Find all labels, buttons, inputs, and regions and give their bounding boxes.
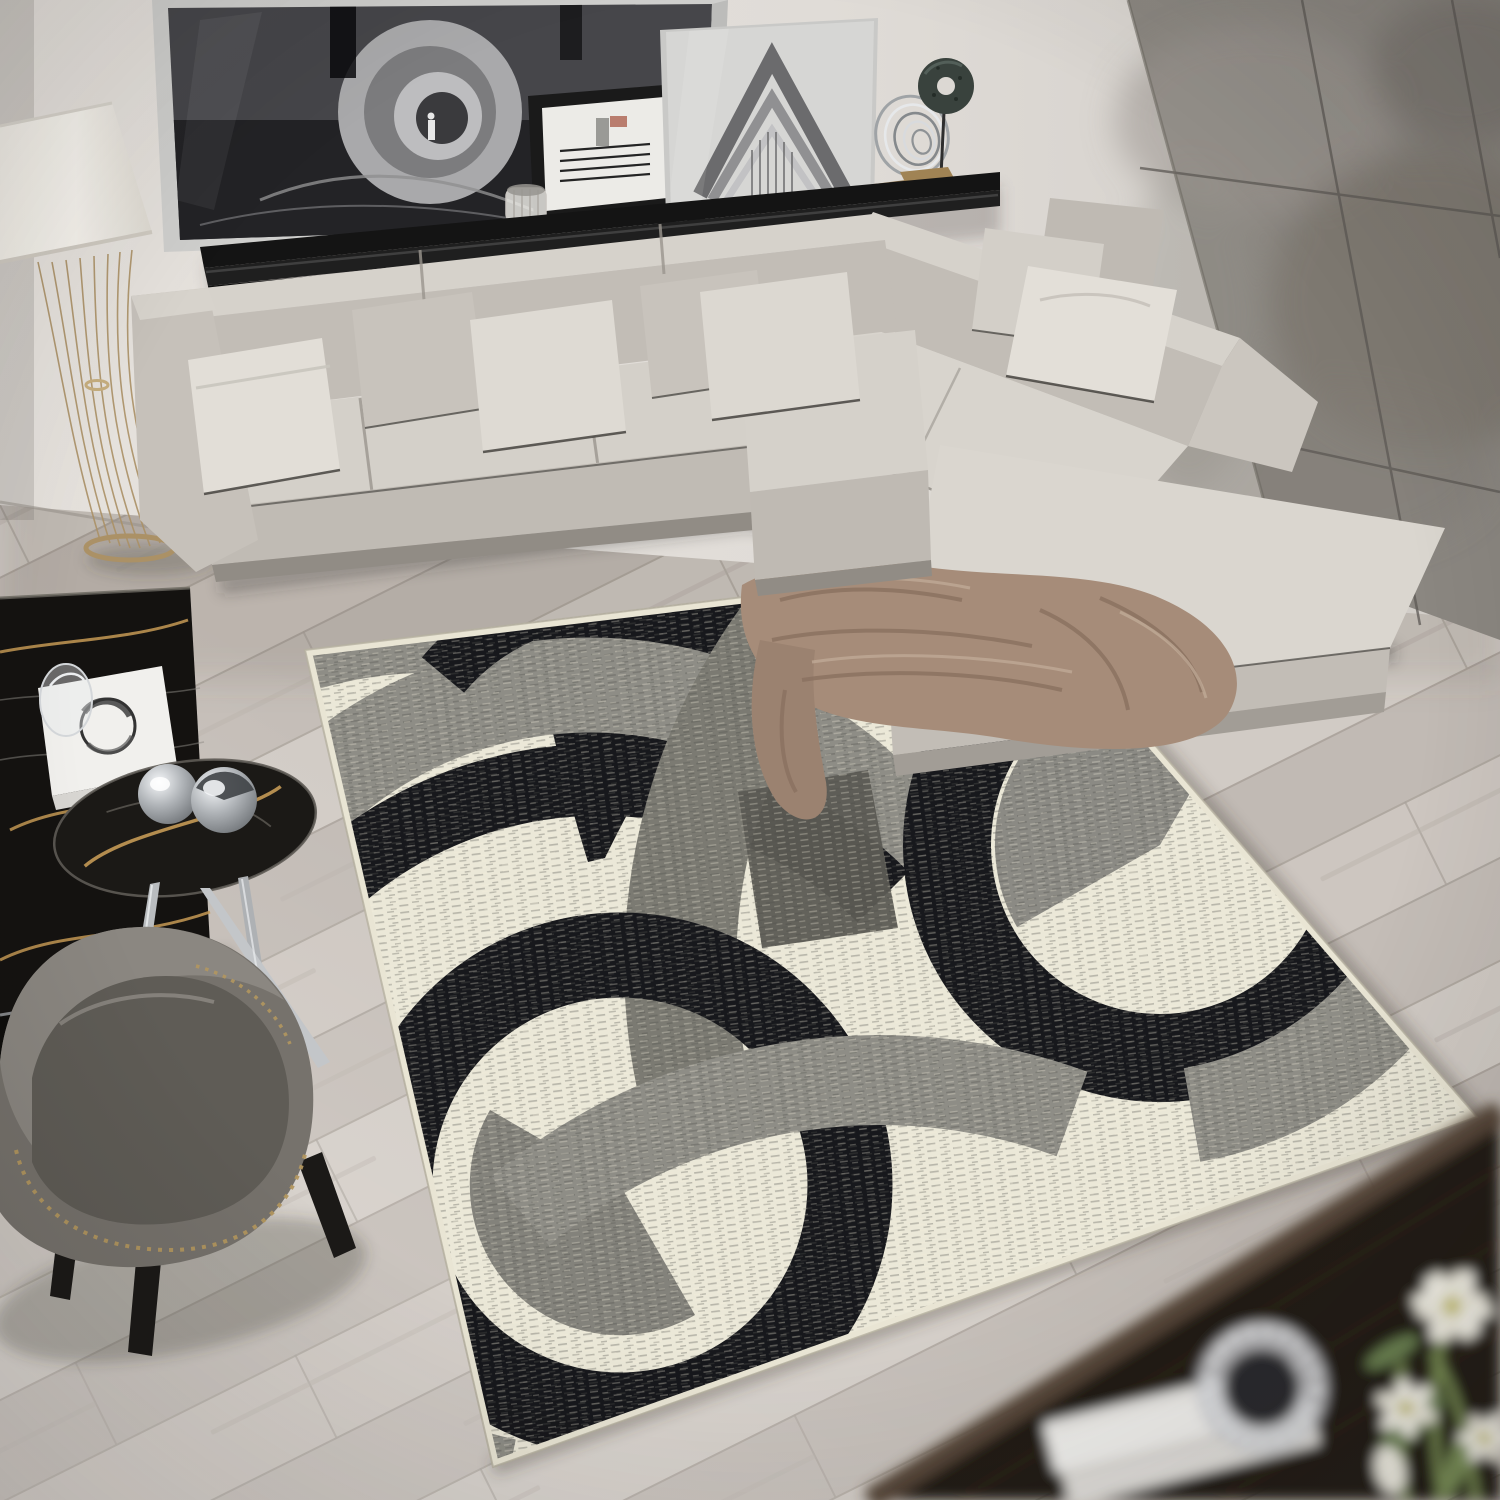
scene-canvas: Modern living room scene: gray L-shaped … — [0, 0, 1500, 1500]
vignette — [0, 0, 1500, 1500]
living-room-photo: Modern living room scene: gray L-shaped … — [0, 0, 1500, 1500]
